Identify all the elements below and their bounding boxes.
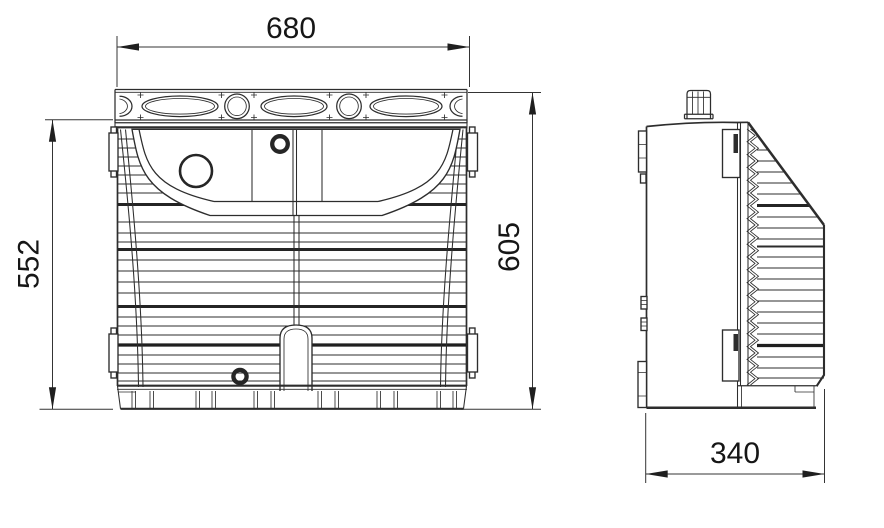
top-rail xyxy=(115,90,467,124)
tab-mid-1 xyxy=(641,297,647,310)
dim-body-height-label: 552 xyxy=(13,239,46,289)
bracket-left-upper xyxy=(109,127,118,177)
dim-depth-label: 340 xyxy=(710,437,760,470)
rail-oval-cutout-inner xyxy=(265,99,324,115)
extension-lines xyxy=(40,120,114,410)
base-feet xyxy=(117,386,467,409)
cap-detail-lines xyxy=(687,92,711,115)
arrowhead-bottom xyxy=(529,387,536,409)
tank-dimension-drawing: 680 552 605 340 xyxy=(0,0,884,528)
dimension-height-552: 552 xyxy=(13,120,114,410)
bracket-slot xyxy=(734,334,739,351)
side-right-edge xyxy=(817,225,825,386)
rail-end-arcs-inner xyxy=(120,99,463,114)
tank-body xyxy=(118,129,467,392)
arrowhead-left xyxy=(117,43,139,50)
bracket-body xyxy=(109,133,118,171)
dim-width-label: 680 xyxy=(266,12,316,45)
side-top-edge xyxy=(647,122,749,126)
center-seam-lines xyxy=(294,216,299,326)
arrowhead-right xyxy=(803,470,825,477)
rail-round-cutout-inner xyxy=(340,97,359,116)
rail-outline xyxy=(115,90,467,124)
rail-end-arcs xyxy=(120,96,463,116)
rail-oval-cutout xyxy=(370,96,442,117)
rail-oval-cutout xyxy=(142,96,218,117)
bracket-right-lower xyxy=(468,328,478,378)
tab-upper xyxy=(639,131,647,172)
rail-round-cutout xyxy=(225,94,250,119)
slope-ribs xyxy=(757,150,824,378)
rail-round-cutout-inner xyxy=(228,97,247,116)
drain-plug xyxy=(233,370,246,383)
arrowhead-bottom xyxy=(49,387,56,409)
arrowhead-left xyxy=(646,470,668,477)
tab-small xyxy=(641,174,647,183)
arrowhead-top xyxy=(49,120,56,142)
cap-flange xyxy=(685,114,714,119)
tab-mid-2 xyxy=(641,318,647,331)
side-base xyxy=(738,386,817,408)
technical-drawing-page: 680 552 605 340 xyxy=(0,0,884,528)
rail-oval-cutout xyxy=(261,96,327,117)
side-base-details xyxy=(742,386,815,408)
feet-slots xyxy=(132,391,457,408)
arrowhead-top xyxy=(529,93,536,115)
side-foot xyxy=(638,362,647,408)
bracket-body xyxy=(468,133,478,171)
side-bracket-lower xyxy=(723,330,740,381)
bracket-slot xyxy=(734,134,739,153)
corrugated-slope xyxy=(747,129,824,385)
bracket-left-lower xyxy=(109,328,118,378)
tank-top-edge xyxy=(115,122,467,128)
filler-cap xyxy=(685,91,714,120)
rail-oval-cutout-inner xyxy=(374,99,439,115)
bracket-right-upper xyxy=(468,127,478,177)
dimension-depth-340: 340 xyxy=(646,389,825,483)
side-slant-edge xyxy=(748,122,824,225)
rail-oval-cutout-inner xyxy=(146,99,215,115)
front-view xyxy=(109,90,478,409)
dim-overall-height-label: 605 xyxy=(493,222,526,272)
arrowhead-right xyxy=(448,43,470,50)
bracket-body xyxy=(109,334,118,372)
dimension-width-680: 680 xyxy=(117,12,470,87)
bracket-body xyxy=(468,334,478,372)
rail-round-cutout xyxy=(337,94,362,119)
side-bracket-upper xyxy=(723,130,741,178)
side-view xyxy=(638,91,824,408)
